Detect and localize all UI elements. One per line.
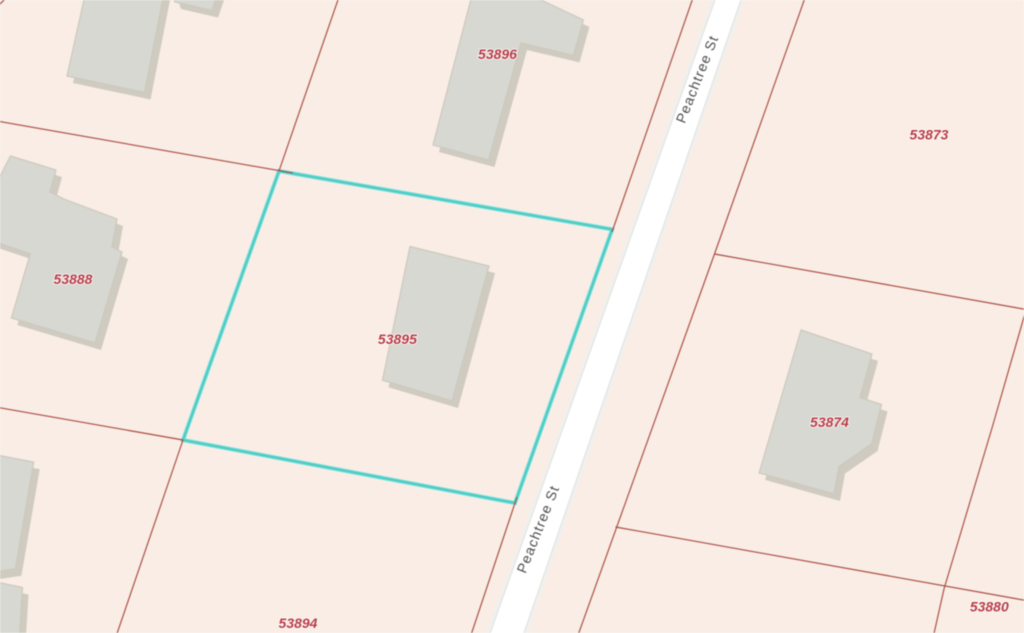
svg-text:53894: 53894 bbox=[279, 615, 318, 631]
svg-text:53874: 53874 bbox=[810, 414, 849, 430]
svg-text:53880: 53880 bbox=[970, 598, 1009, 614]
svg-text:53895: 53895 bbox=[378, 331, 417, 347]
svg-text:53873: 53873 bbox=[910, 127, 949, 143]
svg-text:53888: 53888 bbox=[54, 271, 93, 287]
svg-text:53896: 53896 bbox=[478, 46, 517, 62]
